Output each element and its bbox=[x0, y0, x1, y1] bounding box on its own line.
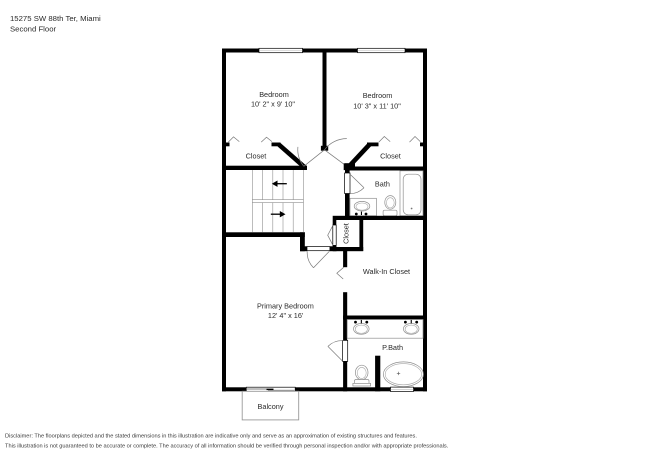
svg-text:Second Floor: Second Floor bbox=[10, 25, 57, 34]
svg-text:Closet: Closet bbox=[380, 151, 401, 160]
svg-text:Balcony: Balcony bbox=[258, 402, 284, 411]
svg-text:P.Bath: P.Bath bbox=[382, 343, 403, 352]
svg-text:10' 3" x 11' 10": 10' 3" x 11' 10" bbox=[353, 102, 401, 111]
svg-text:12' 4" x 16': 12' 4" x 16' bbox=[268, 311, 304, 320]
svg-text:Bedroom: Bedroom bbox=[363, 91, 393, 100]
svg-text:Closet: Closet bbox=[342, 223, 351, 244]
svg-text:This illustration is not guara: This illustration is not guaranteed to b… bbox=[5, 444, 449, 450]
svg-text:Walk-In Closet: Walk-In Closet bbox=[363, 267, 410, 276]
svg-text:Closet: Closet bbox=[246, 151, 267, 160]
svg-text:Bath: Bath bbox=[375, 180, 390, 189]
svg-text:Disclaimer: The floorplans dep: Disclaimer: The floorplans depicted and … bbox=[5, 434, 417, 440]
svg-text:Primary Bedroom: Primary Bedroom bbox=[257, 302, 314, 311]
svg-text:10' 2" x 9' 10": 10' 2" x 9' 10" bbox=[251, 100, 295, 109]
svg-text:15275 SW 88th Ter, Miami: 15275 SW 88th Ter, Miami bbox=[10, 14, 101, 23]
svg-text:Bedroom: Bedroom bbox=[259, 90, 289, 99]
